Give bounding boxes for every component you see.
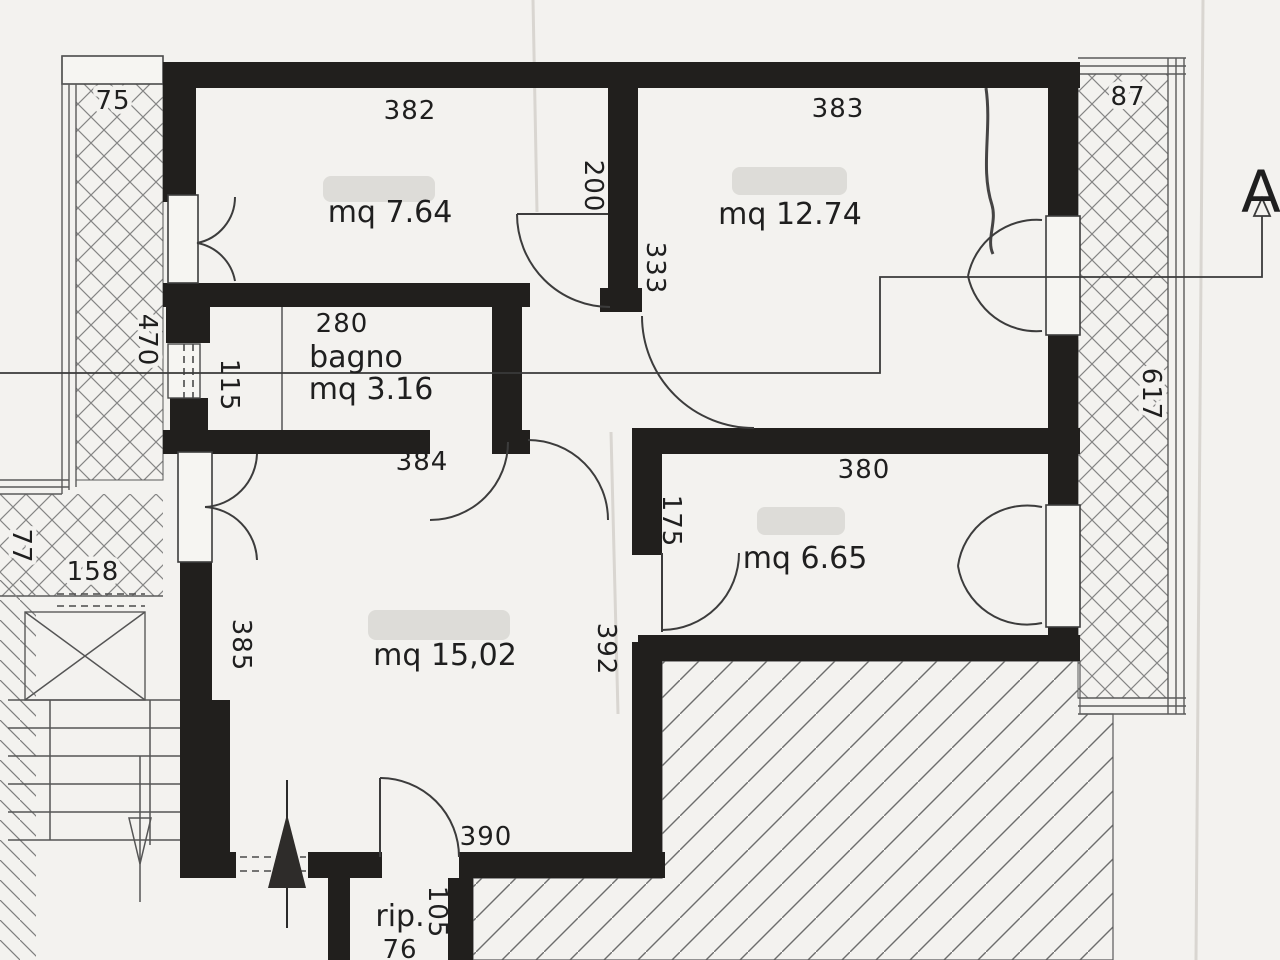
dim-385: 385: [226, 619, 256, 672]
dim-470: 470: [132, 314, 162, 367]
redaction-room380: [757, 507, 845, 535]
redaction-room383: [732, 167, 847, 195]
dim-77: 77: [6, 528, 36, 563]
bagno-area: mq 3.16: [309, 372, 434, 407]
dim-382: 382: [384, 96, 437, 126]
bagno-name: bagno: [309, 340, 403, 375]
wall-pilaster-bagno-sw: [170, 398, 208, 434]
scanned-floor-plan-page: 75 382 383 87 280 384 380 158 390 76 200…: [0, 0, 1280, 960]
wall-north: [163, 62, 1080, 88]
wall-stairwell: [198, 700, 230, 872]
wall-room380-south: [638, 635, 1080, 661]
wall-east-b: [1048, 333, 1078, 507]
dim-333: 333: [640, 242, 670, 295]
dim-105: 105: [422, 886, 452, 939]
bagno-window: [168, 344, 200, 398]
dim-75: 75: [95, 86, 130, 116]
wall-west-room382: [163, 62, 196, 202]
wall-room380-north: [638, 428, 1080, 454]
redaction-soggiorno: [368, 610, 510, 640]
balcony-left-parapet-cap: [62, 56, 163, 84]
dim-87: 87: [1110, 82, 1145, 112]
wall-bagno-south: [163, 430, 430, 454]
section-marker-label: A: [1241, 158, 1280, 226]
wall-bagno-north: [163, 283, 530, 307]
rip-name: rip.: [375, 899, 424, 934]
dim-392: 392: [591, 623, 621, 676]
floor-plan-drawing: 75 382 383 87 280 384 380 158 390 76 200…: [0, 0, 1280, 960]
wall-west-room383: [608, 88, 638, 300]
left-edge-hatch: [0, 580, 36, 960]
soggiorno-area: mq 15,02: [373, 638, 517, 673]
room382-area: mq 7.64: [328, 195, 453, 230]
dim-115: 115: [214, 359, 244, 412]
wall-east-soggiorno: [632, 642, 662, 878]
dim-390: 390: [460, 822, 513, 852]
dim-158: 158: [67, 557, 120, 587]
dim-380: 380: [838, 455, 891, 485]
wall-east-a: [1048, 62, 1078, 220]
dim-280: 280: [316, 309, 369, 339]
dim-383: 383: [812, 94, 865, 124]
wall-east-c: [1048, 625, 1078, 661]
room380-area: mq 6.65: [743, 541, 868, 576]
balcony-left-floor-hatch: [76, 84, 163, 480]
wall-rip-west: [328, 862, 350, 960]
dim-175: 175: [656, 495, 686, 548]
wall-pilaster-hall: [600, 288, 642, 312]
dim-76: 76: [382, 935, 417, 960]
dim-617: 617: [1136, 368, 1166, 421]
wall-south-a: [180, 852, 236, 878]
dim-200: 200: [578, 160, 608, 213]
dim-384: 384: [396, 447, 449, 477]
room383-area: mq 12.74: [718, 197, 862, 232]
